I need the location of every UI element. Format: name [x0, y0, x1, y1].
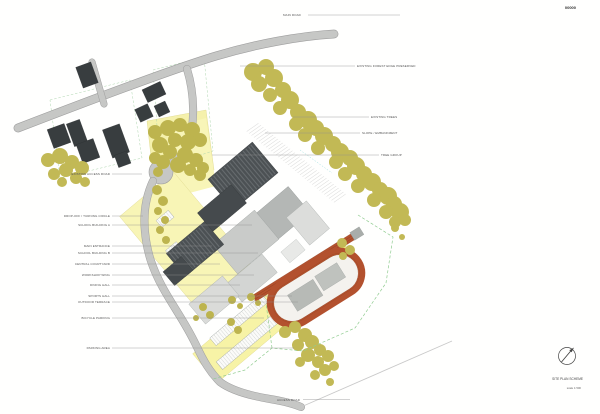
annotation-label: SCHOOL BUILDING A [78, 223, 110, 227]
road-name-top: MAIN ROAD [283, 13, 400, 17]
sheet-number: 00000 [565, 5, 577, 10]
north-arrow-icon [559, 348, 576, 365]
annotation: PARKING AREA [87, 346, 294, 350]
main-road [18, 34, 334, 128]
annotation-label: WORKSHOP WING [82, 273, 111, 277]
annotation-label: CENTRAL COURTYARD [75, 262, 111, 266]
site-plan-drawing: EXISTING ACCESS ROAD DROP-OFF / TURNING … [0, 0, 600, 414]
annotation-label: TREE GROUP [381, 153, 402, 157]
existing-house [135, 104, 154, 123]
annotation-label: SCHOOL BUILDING B [78, 251, 110, 255]
road-name-label: MAIN ROAD [283, 13, 302, 17]
annotation-label: BICYCLE PARKING [82, 316, 111, 320]
site-plan-sheet: EXISTING ACCESS ROAD DROP-OFF / TURNING … [0, 0, 600, 414]
drawing-scale: scale 1:500 [567, 386, 582, 390]
title-block: SITE PLAN SCHEME scale 1:500 [552, 348, 583, 391]
existing-house [154, 101, 170, 117]
annotation: EXISTING ACCESS ROAD [71, 172, 142, 176]
annotation-label: DINING HALL [90, 283, 110, 287]
drawing-title: SITE PLAN SCHEME [552, 377, 583, 381]
pavilion [281, 239, 305, 263]
annotation-label: MAIN ENTRANCE [84, 244, 110, 248]
annotation-label: SPORTS HALL [88, 294, 110, 298]
road-name-label: ACCESS ROAD [277, 398, 301, 402]
annotation-label: DROP-OFF / TURNING CIRCLE [64, 214, 110, 218]
annotation-label: EXISTING FOREST EDGE PRESERVED [357, 64, 416, 68]
annotation-label: OUTDOOR TERRACE [78, 300, 110, 304]
annotation-label: SLOPE / EMBANKMENT [362, 131, 398, 135]
annotation-label: EXISTING ACCESS ROAD [71, 172, 110, 176]
annotation-label: EXISTING TREES [371, 115, 397, 119]
annotation-label: PARKING AREA [87, 346, 110, 350]
